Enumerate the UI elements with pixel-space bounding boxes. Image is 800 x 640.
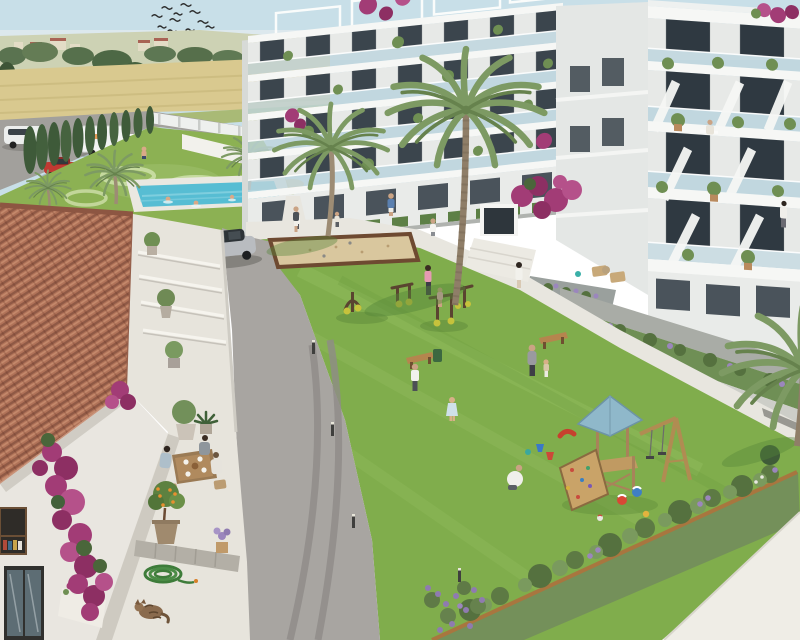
person (430, 218, 436, 236)
floor (648, 198, 800, 282)
toy (575, 271, 581, 277)
green-box (433, 349, 442, 362)
person (142, 147, 147, 159)
shelf-window (0, 508, 26, 554)
floor (648, 18, 800, 81)
render-scene: Aerial render of a new-build apartment c… (0, 0, 800, 640)
bread-basket (192, 463, 199, 470)
lobby-entrance (484, 208, 514, 234)
glass-door (4, 566, 44, 640)
render-viewport: Aerial render of a new-build apartment c… (0, 0, 800, 640)
apartment-building-right (648, 0, 800, 377)
floor (648, 131, 800, 209)
lavender-pot (216, 542, 228, 553)
building-side (242, 40, 248, 237)
foreground-house (0, 205, 250, 640)
